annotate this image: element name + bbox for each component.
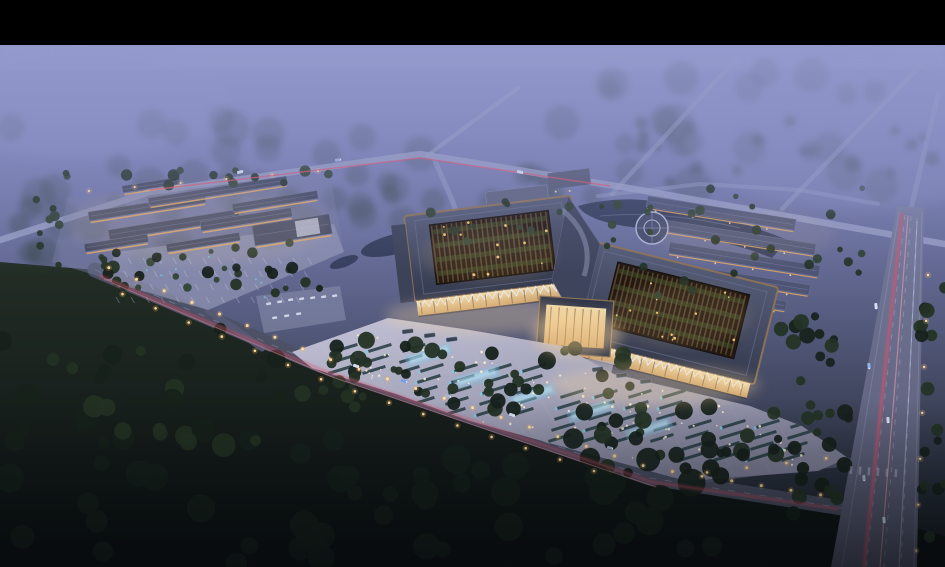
bottom-vignette	[0, 400, 945, 567]
plaza-south-tree	[454, 361, 465, 372]
street-light	[923, 366, 925, 368]
parking-glow-dot	[264, 296, 266, 298]
bottom-left-field-tree	[67, 363, 78, 374]
plaza-light-dot	[532, 379, 533, 380]
rendering-viewport	[0, 0, 945, 567]
plaza-light-dot	[370, 367, 372, 369]
plaza-light-dot	[378, 375, 380, 377]
parking-glow-dot	[255, 278, 257, 280]
street-light	[154, 307, 157, 310]
plaza-light-dot	[371, 378, 372, 379]
left-site-inner-tree	[283, 285, 289, 291]
road-mid-band-tree	[510, 370, 519, 379]
plaza-light-dot	[423, 378, 426, 381]
street-light	[414, 387, 417, 390]
parking-glow-dot	[260, 282, 262, 284]
plaza-light-dot	[546, 381, 548, 383]
bottom-left-field-tree	[136, 346, 146, 356]
road-mid-band-tree	[448, 383, 459, 394]
street-light	[273, 336, 276, 339]
street-light	[187, 321, 190, 324]
road-mid-band-tree	[424, 343, 440, 359]
east-hall-glow	[550, 365, 760, 405]
vroad-west-tree	[793, 314, 809, 330]
street-light	[329, 358, 332, 361]
vroad-west-tree	[814, 329, 824, 339]
vroad-west-tree	[774, 322, 788, 336]
bottom-left-field-tree	[103, 345, 122, 364]
bottom-left-field-tree	[179, 354, 196, 371]
street-light	[190, 301, 193, 304]
plaza-south-tree	[438, 349, 448, 359]
plaza-light-dot	[491, 363, 493, 365]
plaza-light-dot	[369, 372, 371, 374]
vroad-west-tree	[811, 312, 819, 320]
plaza-south-tree	[359, 392, 367, 400]
street-light	[218, 313, 221, 316]
plaza-light-dot	[457, 380, 459, 382]
vroad-east-tree	[921, 382, 935, 396]
plaza-light-dot	[384, 354, 386, 356]
road-mid-band-tree	[504, 383, 518, 397]
plaza-light-dot	[475, 361, 478, 364]
road-upper-band-tree	[300, 277, 310, 287]
plaza-south-tree	[421, 389, 430, 398]
road-mid-band-tree	[485, 347, 499, 361]
road-mid-band-tree	[401, 369, 411, 379]
road-upper-band-tree	[271, 288, 280, 297]
street-light	[121, 293, 124, 296]
street-light	[320, 378, 323, 381]
road-mid-band-tree	[318, 385, 328, 395]
plaza-light-dot	[422, 349, 424, 351]
street-light	[443, 397, 446, 400]
street-light	[354, 390, 357, 393]
road-mid-band-tree	[521, 383, 532, 394]
plaza-light-dot	[371, 375, 373, 377]
bottom-left-field-tree	[94, 372, 106, 384]
plaza-light-dot	[480, 370, 483, 373]
aerial-dusk-rendering	[0, 0, 945, 567]
road-upper-band-tree	[316, 285, 323, 292]
bottom-left-field-tree	[47, 353, 60, 366]
plaza-light-dot	[357, 334, 359, 336]
vroad-west-tree	[799, 328, 815, 344]
vroad-west-tree	[815, 352, 825, 362]
plaza-light-dot	[380, 369, 381, 370]
plaza-light-dot	[532, 392, 534, 394]
road-mid-band-tree	[294, 385, 310, 401]
plaza-light-dot	[365, 370, 367, 372]
plaza-light-dot	[455, 372, 457, 374]
bottom-left-field-tree	[256, 372, 267, 383]
vroad-west-tree	[826, 358, 835, 367]
vroad-west-tree	[786, 334, 801, 349]
plaza-light-dot	[388, 354, 389, 355]
plaza-light-dot	[480, 351, 483, 354]
plaza-south-tree	[484, 379, 493, 388]
plaza-light-dot	[483, 361, 486, 364]
left-site-inner-tree	[173, 273, 180, 280]
plaza-south-tree	[391, 366, 398, 373]
left-site-inner-tree	[214, 277, 220, 283]
vroad-west-tree	[796, 376, 805, 385]
road-mid-band-tree	[538, 352, 556, 370]
street-light	[135, 278, 138, 281]
road-mid-band-tree	[400, 341, 411, 352]
left-site-inner-tree	[183, 283, 192, 292]
street-light	[301, 347, 304, 350]
road-mid-band-tree	[358, 332, 375, 349]
plaza-light-dot	[437, 378, 439, 380]
road-mid-band-tree	[533, 384, 544, 395]
plaza-light-dot	[468, 383, 470, 385]
street-light	[254, 350, 257, 353]
plaza-light-dot	[533, 382, 534, 383]
plaza-light-dot	[451, 356, 453, 358]
street-light	[386, 377, 389, 380]
letterbox-bar-top	[0, 0, 945, 45]
plaza-light-dot	[377, 337, 379, 339]
plaza-light-dot	[548, 397, 550, 399]
street-light	[246, 324, 249, 327]
east-courtyard-glow	[606, 284, 750, 348]
street-light	[163, 289, 166, 292]
vroad-west-tree	[825, 339, 839, 353]
street-light	[221, 335, 224, 338]
parking-glow-dot	[160, 274, 162, 276]
road-upper-band-tree	[230, 279, 242, 291]
vroad-east-tree	[920, 303, 935, 318]
street-light	[927, 274, 929, 276]
left-site-inner-tree	[135, 284, 141, 290]
street-light	[925, 320, 927, 322]
street-light	[287, 364, 290, 367]
